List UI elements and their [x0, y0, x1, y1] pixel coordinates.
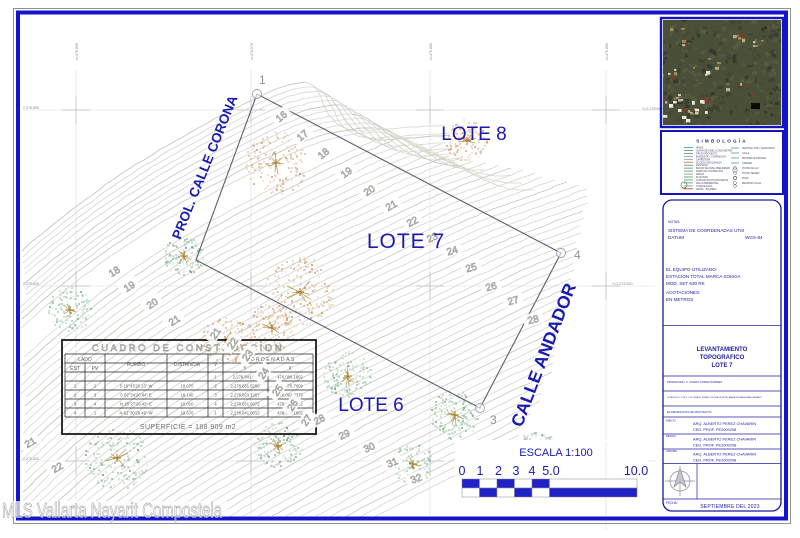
svg-text:LOTE 6: LOTE 6: [338, 395, 403, 416]
svg-text:10.070: 10.070: [181, 384, 194, 389]
svg-text:BANCO DE NIVEL PRELIMINAR: BANCO DE NIVEL PRELIMINAR: [696, 167, 730, 170]
svg-text:PROPIEDAD PRIVADA: PROPIEDAD PRIVADA: [742, 157, 767, 160]
svg-text:5.0: 5.0: [542, 464, 559, 478]
svg-text:2,278,823.1287: 2,278,823.1287: [230, 393, 260, 398]
svg-text:2,278,831.5286: 2,278,831.5286: [230, 384, 260, 389]
svg-text:CERCA: CERCA: [696, 173, 705, 176]
svg-text:SIMBOLOGÍA: SIMBOLOGÍA: [696, 137, 748, 144]
svg-text:ARQ. ALBERTO PEREZ CHAVARIN: ARQ. ALBERTO PEREZ CHAVARIN: [693, 437, 756, 442]
svg-text:x=476,060: x=476,060: [75, 43, 79, 60]
svg-text:S 62°24'20.84" E: S 62°24'20.84" E: [120, 393, 152, 398]
svg-text:10.0: 10.0: [624, 464, 648, 478]
svg-text:2,278,841.0013: 2,278,841.0013: [230, 411, 260, 416]
svg-text:x=476,090: x=476,090: [605, 43, 609, 60]
svg-text:ACCESO ADOQUINADO: ACCESO ADOQUINADO: [696, 161, 722, 164]
svg-text:LEVANTAMIENTO: LEVANTAMIENTO: [697, 347, 748, 353]
svg-text:REVISO:: REVISO:: [666, 434, 677, 438]
svg-text:MALLA PERIMETRAL: MALLA PERIMETRAL: [696, 182, 719, 185]
svg-text:RUMBO: RUMBO: [127, 362, 146, 368]
svg-text:MURO DE CONTENCION: MURO DE CONTENCION: [696, 171, 723, 173]
svg-text:MOD. SET 630 RK: MOD. SET 630 RK: [666, 281, 706, 286]
svg-text:CURVA DE NIVEL A CADA METRO: CURVA DE NIVEL A CADA METRO: [696, 149, 733, 152]
svg-text:LINDERO: LINDERO: [742, 163, 752, 165]
svg-text:LOTE 8: LOTE 8: [441, 124, 506, 145]
svg-text:2,278,850: 2,278,850: [23, 106, 39, 110]
svg-text:MLS Vallarta Nayarit Compostel: MLS Vallarta Nayarit Compostela: [2, 500, 222, 523]
svg-text:Y=2,278,820: Y=2,278,820: [612, 282, 632, 286]
svg-text:3: 3: [490, 413, 497, 427]
svg-text:4: 4: [574, 248, 581, 262]
svg-text:CED. PROF. PE2000298: CED. PROF. PE2000298: [693, 427, 736, 432]
svg-text:ESTACION: ESTACION: [696, 164, 708, 167]
svg-text:1: 1: [259, 73, 266, 87]
svg-text:ARQ. ALBERTO PEREZ CHAVARIN: ARQ. ALBERTO PEREZ CHAVARIN: [693, 421, 756, 426]
svg-text:POZO: POZO: [742, 178, 749, 180]
svg-text:ESCALA 1:100: ESCALA 1:100: [519, 447, 592, 459]
svg-text:2: 2: [495, 464, 502, 478]
svg-text:LADO: LADO: [78, 357, 92, 363]
svg-text:NOTAS:: NOTAS:: [668, 220, 680, 224]
svg-text:CALLE: CALLE: [742, 152, 750, 155]
svg-text:CONSTRUCCION EXISTENTE: CONSTRUCCION EXISTENTE: [696, 180, 729, 182]
svg-text:LOTE 7: LOTE 7: [711, 363, 733, 369]
svg-text:DOMICILIO: LOTE 7, COLONIA EL: DOMICILIO: LOTE 7, COLONIA EL CERRO, PUN…: [667, 396, 762, 399]
svg-text:S 19°43'20.13" W: S 19°43'20.13" W: [120, 384, 153, 389]
svg-text:SUPERFICIE = 188.909 m2: SUPERFICIE = 188.909 m2: [140, 424, 236, 431]
svg-text:EL EQUIPO UTILIZADO:: EL EQUIPO UTILIZADO:: [666, 267, 717, 272]
svg-text:x=476,080: x=476,080: [429, 43, 433, 60]
svg-text:10.010: 10.010: [181, 402, 194, 407]
svg-text:SISTEMA DE COORDENADAS UTM: SISTEMA DE COORDENADAS UTM: [668, 228, 744, 233]
svg-text:LOTE 7: LOTE 7: [367, 230, 445, 253]
svg-text:ESTACION TOTAL MARCA SOKKIA: ESTACION TOTAL MARCA SOKKIA: [666, 274, 741, 279]
svg-text:EN METROS: EN METROS: [666, 297, 693, 302]
svg-text:2,278,831.9372: 2,278,831.9372: [230, 402, 260, 407]
svg-text:FECHA:: FECHA:: [666, 501, 678, 505]
svg-text:BANQUETA Y GUARNICION: BANQUETA Y GUARNICION: [696, 155, 726, 158]
svg-text:Y=2,278,840: Y=2,278,840: [642, 107, 662, 111]
svg-text:PLATANAR: PLATANAR: [696, 176, 708, 179]
svg-text:VERTICE LOTE 7 LEVANTADO: VERTICE LOTE 7 LEVANTADO: [742, 147, 775, 150]
svg-text:ACOTACIONES:: ACOTACIONES:: [666, 290, 700, 295]
svg-text:TRAZO PROYECTO: TRAZO PROYECTO: [696, 152, 717, 155]
svg-text:476,080.1802: 476,080.1802: [277, 375, 303, 380]
svg-text:EST: EST: [70, 366, 80, 372]
svg-text:SEPTIEMBRE DEL 2023: SEPTIEMBRE DEL 2023: [700, 504, 759, 510]
svg-text:ARBOL - PALMERA: ARBOL - PALMERA: [696, 188, 717, 191]
svg-text:TOPOGRAFICO: TOPOGRAFICO: [700, 355, 745, 361]
svg-text:REGISTRO AGUA: REGISTRO AGUA: [742, 182, 761, 185]
svg-text:ARBOL: ARBOL: [696, 147, 705, 150]
svg-text:DISTANCIA: DISTANCIA: [174, 362, 201, 368]
svg-text:CED. PROF. PE2000298: CED. PROF. PE2000298: [693, 458, 736, 463]
svg-text:POSTE TELMEX: POSTE TELMEX: [742, 173, 760, 175]
svg-text:WGS-84: WGS-84: [745, 235, 763, 240]
svg-text:CARRETERA: CARRETERA: [696, 158, 711, 161]
svg-text:CED. PROF. PE2000298: CED. PROF. PE2000298: [693, 443, 736, 448]
svg-text:POSTE DE LUZ: POSTE DE LUZ: [742, 168, 759, 170]
svg-text:DATUM: DATUM: [668, 235, 684, 240]
svg-text:PROPIETARIO: C. ALVARO GOMEZ R: PROPIETARIO: C. ALVARO GOMEZ RAMIREZ: [667, 380, 722, 384]
svg-text:N 28°27'26.43" E: N 28°27'26.43" E: [120, 402, 152, 407]
svg-text:ARQ. ALBERTO PEREZ CHAVARIN: ARQ. ALBERTO PEREZ CHAVARIN: [693, 452, 756, 457]
svg-text:N 62°30'29.49" W: N 62°30'29.49" W: [119, 411, 152, 416]
svg-text:18.140: 18.140: [181, 393, 194, 398]
svg-text:DIBUJO:: DIBUJO:: [666, 419, 677, 423]
svg-text:4: 4: [529, 464, 536, 478]
svg-text:APROBO:: APROBO:: [666, 449, 678, 453]
svg-text:PV: PV: [92, 366, 99, 372]
svg-text:1: 1: [477, 464, 484, 478]
svg-text:TANQUE AGUA: TANQUE AGUA: [696, 185, 713, 188]
svg-text:19.670: 19.670: [181, 411, 194, 416]
svg-text:0: 0: [459, 464, 466, 478]
svg-text:ELABORACION DE PROYECTO:: ELABORACION DE PROYECTO:: [667, 410, 712, 414]
svg-text:x=476,070: x=476,070: [250, 43, 254, 60]
svg-text:3: 3: [513, 464, 520, 478]
